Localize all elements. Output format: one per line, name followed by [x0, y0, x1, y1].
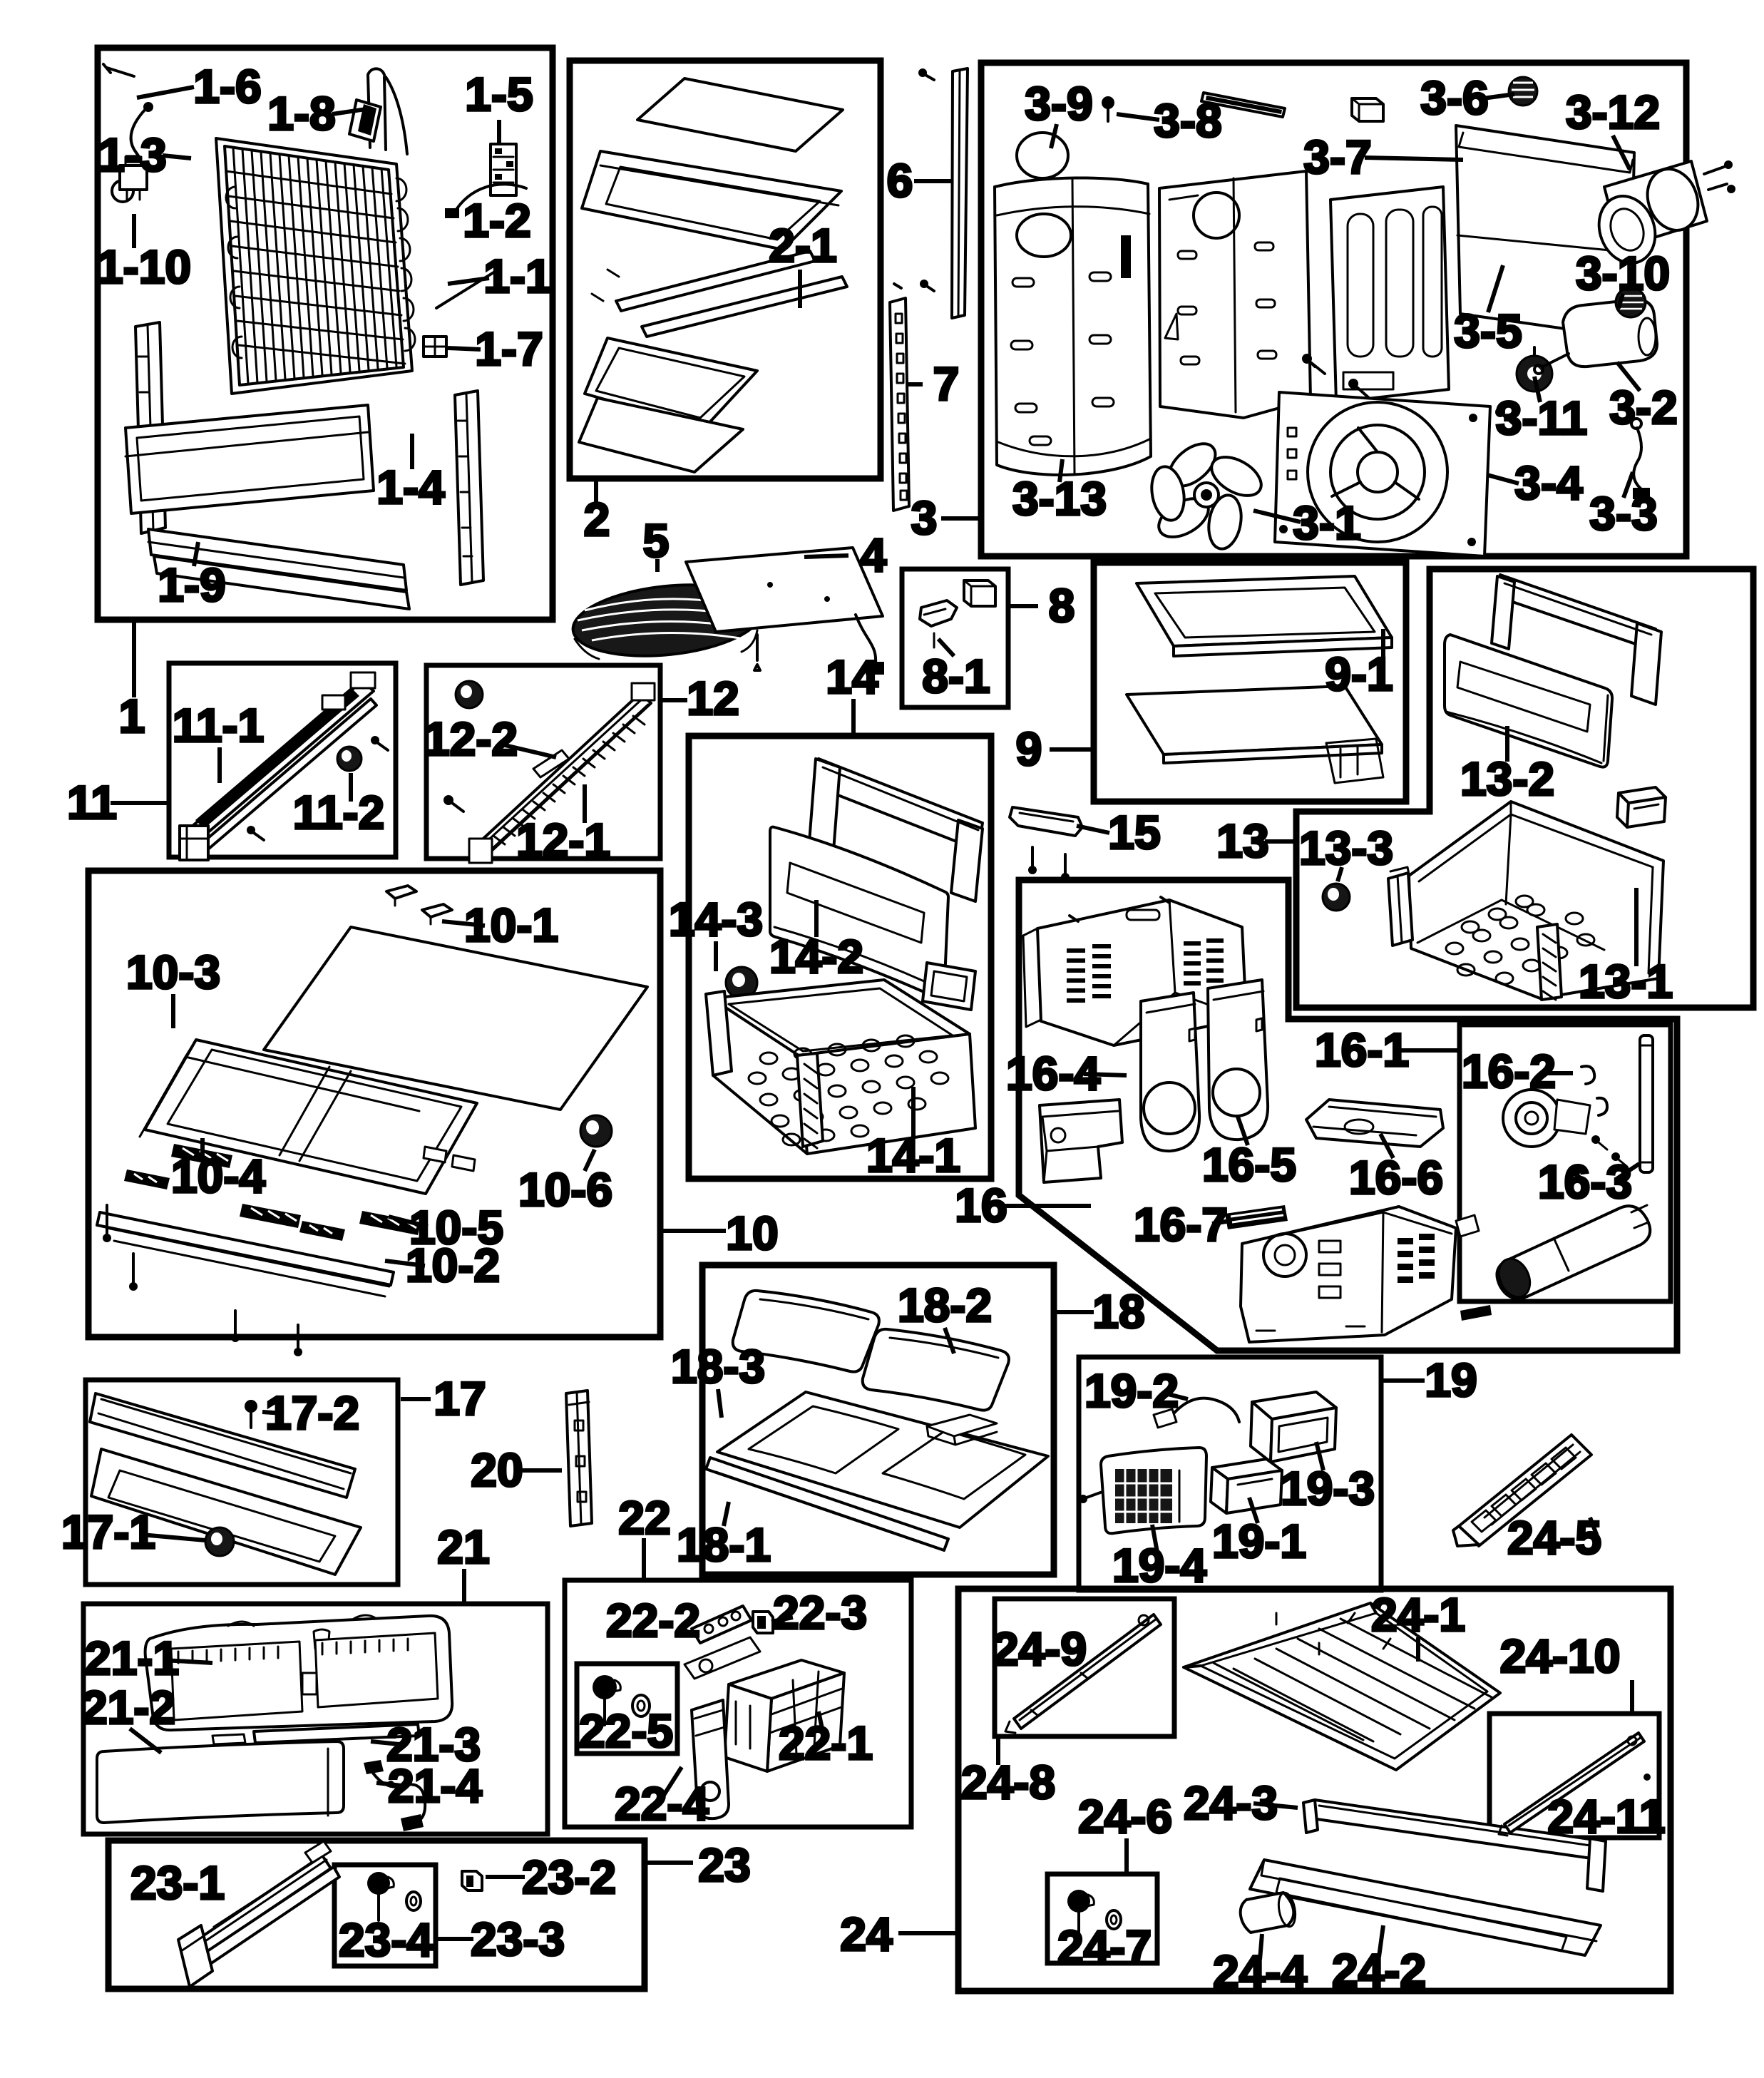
svg-text:22: 22 — [618, 1491, 670, 1544]
svg-text:24-5: 24-5 — [1507, 1511, 1601, 1564]
svg-text:19-2: 19-2 — [1084, 1364, 1179, 1417]
svg-text:3: 3 — [911, 491, 938, 544]
svg-text:15: 15 — [1108, 806, 1160, 859]
svg-text:20: 20 — [471, 1443, 523, 1496]
svg-text:6: 6 — [887, 154, 913, 207]
svg-text:3-4: 3-4 — [1514, 456, 1583, 509]
svg-text:3-5: 3-5 — [1454, 304, 1522, 357]
svg-text:3-12: 3-12 — [1566, 86, 1660, 138]
svg-text:16: 16 — [955, 1179, 1007, 1232]
svg-text:24-7: 24-7 — [1057, 1920, 1152, 1973]
svg-text:21-1: 21-1 — [85, 1632, 179, 1684]
svg-text:22-4: 22-4 — [615, 1777, 709, 1830]
svg-text:9: 9 — [1016, 722, 1042, 775]
svg-text:1-8: 1-8 — [267, 87, 335, 140]
svg-text:3-8: 3-8 — [1154, 94, 1221, 147]
svg-text:11-1: 11-1 — [173, 699, 264, 752]
svg-text:1-7: 1-7 — [475, 322, 543, 375]
svg-text:21: 21 — [437, 1520, 489, 1573]
svg-text:19-3: 19-3 — [1281, 1462, 1375, 1515]
svg-text:24-11: 24-11 — [1547, 1790, 1665, 1843]
svg-text:3-6: 3-6 — [1420, 71, 1488, 124]
svg-text:22-5: 22-5 — [579, 1704, 673, 1757]
svg-text:3-9: 3-9 — [1025, 77, 1092, 130]
svg-text:5: 5 — [643, 514, 670, 567]
svg-text:14-3: 14-3 — [669, 893, 763, 946]
svg-text:19: 19 — [1425, 1353, 1477, 1406]
svg-text:3-1: 3-1 — [1293, 496, 1360, 549]
svg-text:10: 10 — [726, 1207, 778, 1259]
svg-text:1-5: 1-5 — [465, 68, 533, 121]
svg-text:24-8: 24-8 — [961, 1756, 1055, 1808]
svg-text:1: 1 — [119, 690, 145, 742]
svg-text:2-1: 2-1 — [769, 219, 836, 272]
svg-text:23-3: 23-3 — [471, 1913, 565, 1965]
svg-text:1-3: 1-3 — [98, 128, 166, 181]
svg-text:10-4: 10-4 — [171, 1150, 265, 1202]
svg-text:13: 13 — [1216, 814, 1268, 867]
svg-text:1-9: 1-9 — [158, 558, 225, 611]
svg-text:1-1: 1-1 — [483, 250, 551, 302]
svg-text:12-1: 12-1 — [516, 814, 610, 866]
svg-text:16-6: 16-6 — [1349, 1151, 1443, 1204]
svg-text:10-6: 10-6 — [518, 1163, 612, 1216]
svg-text:14: 14 — [826, 650, 878, 703]
svg-text:14-2: 14-2 — [769, 930, 863, 983]
svg-text:7: 7 — [933, 357, 960, 410]
svg-text:8-1: 8-1 — [922, 650, 990, 702]
svg-text:22-1: 22-1 — [779, 1716, 873, 1769]
svg-text:18-3: 18-3 — [671, 1340, 765, 1393]
svg-text:18-1: 18-1 — [677, 1518, 771, 1571]
svg-text:3-2: 3-2 — [1609, 381, 1677, 434]
svg-text:1-2: 1-2 — [463, 194, 530, 247]
svg-text:24-1: 24-1 — [1371, 1588, 1465, 1641]
svg-text:13-1: 13-1 — [1579, 955, 1673, 1008]
svg-text:11-2: 11-2 — [293, 786, 384, 839]
svg-text:22-2: 22-2 — [606, 1594, 700, 1647]
svg-text:18: 18 — [1092, 1285, 1144, 1338]
svg-text:21-2: 21-2 — [81, 1681, 175, 1734]
svg-text:23: 23 — [698, 1838, 750, 1891]
svg-text:22-3: 22-3 — [773, 1586, 867, 1639]
svg-text:14-1: 14-1 — [866, 1129, 960, 1182]
svg-text:3-7: 3-7 — [1303, 130, 1371, 183]
svg-text:1-10: 1-10 — [97, 240, 191, 293]
svg-text:23-2: 23-2 — [522, 1851, 616, 1903]
svg-text:13-3: 13-3 — [1299, 822, 1393, 874]
svg-text:24-6: 24-6 — [1078, 1790, 1172, 1843]
svg-text:16-5: 16-5 — [1202, 1138, 1296, 1191]
svg-text:17: 17 — [434, 1372, 486, 1425]
svg-text:23-1: 23-1 — [130, 1856, 225, 1909]
svg-text:12-2: 12-2 — [424, 712, 518, 765]
svg-text:12: 12 — [687, 672, 739, 725]
svg-text:17-1: 17-1 — [61, 1505, 155, 1558]
svg-text:1-6: 1-6 — [193, 60, 261, 113]
svg-text:10-3: 10-3 — [126, 946, 220, 998]
svg-text:24-9: 24-9 — [993, 1622, 1087, 1675]
svg-text:8: 8 — [1049, 579, 1075, 632]
svg-text:24: 24 — [840, 1908, 893, 1960]
svg-text:3-10: 3-10 — [1576, 247, 1670, 300]
svg-text:4: 4 — [861, 528, 887, 581]
svg-text:24-10: 24-10 — [1500, 1629, 1621, 1682]
svg-text:23-4: 23-4 — [339, 1913, 433, 1966]
svg-text:18-2: 18-2 — [898, 1279, 992, 1331]
svg-text:19-4: 19-4 — [1112, 1539, 1206, 1592]
svg-text:11: 11 — [67, 776, 117, 829]
svg-text:16-3: 16-3 — [1538, 1155, 1632, 1208]
